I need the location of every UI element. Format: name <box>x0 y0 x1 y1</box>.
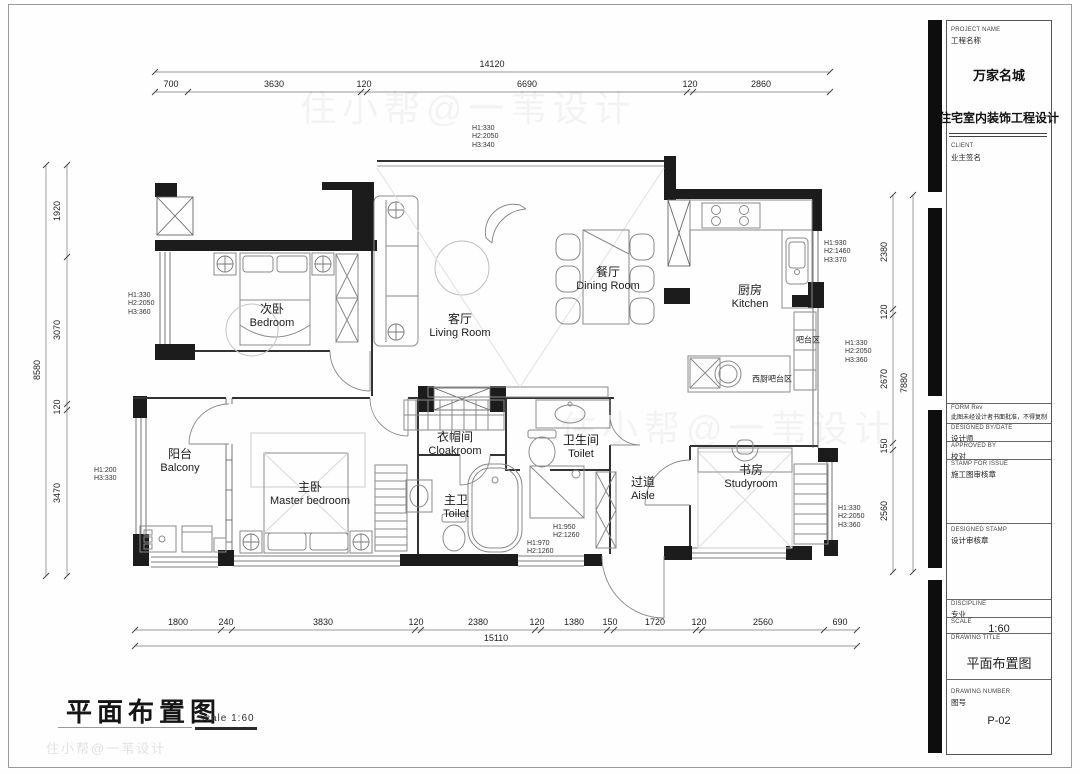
walls <box>133 156 838 566</box>
title-block: PROJECT NAME 工程名称 万家名城 住宅室内装饰工程设计 CLIENT… <box>946 20 1052 755</box>
room-label-living: 客厅 Living Room <box>429 313 490 339</box>
dim-bottom-seg: 150 <box>602 617 617 627</box>
room-label-west-bar: 西厨吧台区 <box>752 374 792 385</box>
dim-left-seg: 3470 <box>52 483 62 503</box>
divider <box>947 459 1051 460</box>
furniture <box>140 168 828 553</box>
tv-bench <box>428 387 608 397</box>
kitchen-sink <box>786 238 808 284</box>
note-kitchen-right: H1:930H2:1460H3:370 <box>824 240 850 265</box>
sofa <box>374 196 418 346</box>
dim-right-total: 7880 <box>899 373 909 393</box>
toilet-fixture <box>528 430 556 467</box>
dim-right-seg: 2560 <box>879 501 889 521</box>
dim-left-total: 8580 <box>32 360 42 380</box>
divider <box>947 423 1051 424</box>
title-underline <box>58 727 192 728</box>
project-name-label: PROJECT NAME <box>951 27 1000 33</box>
dim-bottom-seg: 240 <box>218 617 233 627</box>
dim-right-seg: 2380 <box>879 242 889 262</box>
dim-left-seg: 1920 <box>52 201 62 221</box>
note-balcony-left: H1:200H3:330 <box>94 467 117 484</box>
dim-bottom-seg: 1720 <box>645 617 665 627</box>
divider <box>947 599 1051 600</box>
room-label-kitchen: 厨房 Kitchen <box>732 284 769 310</box>
project-name: 万家名城 <box>947 65 1051 84</box>
dim-bottom-seg: 2380 <box>468 617 488 627</box>
divider <box>947 633 1051 634</box>
title-block-bar <box>928 410 942 568</box>
dim-top-total: 14120 <box>479 59 504 69</box>
dim-bottom-seg: 120 <box>529 617 544 627</box>
dim-top-seg: 120 <box>682 79 697 89</box>
sheet-scale-note: scale 1:60 <box>199 713 255 724</box>
dim-top-seg: 2860 <box>751 79 771 89</box>
designed-by-label: DESIGNED BY/DATE <box>951 425 1012 431</box>
divider <box>947 441 1051 442</box>
divider <box>947 523 1051 524</box>
drawing-number-value: P-02 <box>947 715 1051 727</box>
dim-bottom-seg: 3830 <box>313 617 333 627</box>
dim-bottom-seg: 690 <box>832 617 847 627</box>
room-label-master-toilet: 主卫 Toilet <box>443 494 469 520</box>
dim-left-seg: 3070 <box>52 320 62 340</box>
shafts <box>157 197 690 410</box>
stamp-value: 施工图审核章 <box>951 469 996 480</box>
dim-right-seg: 2670 <box>879 369 889 389</box>
watermark: 住小帮@一苇设计 <box>46 738 166 757</box>
note-bar-right: H1:330H2:2050H3:360 <box>845 340 871 365</box>
divider <box>947 679 1051 680</box>
shower <box>530 466 584 518</box>
divider <box>947 403 1051 404</box>
room-label-dining: 餐厅 Dining Room <box>576 266 640 292</box>
stamp-label: STAMP FOR ISSUE <box>951 461 1008 467</box>
title-block-bar <box>928 20 942 192</box>
room-label-bar: 吧台区 <box>796 335 820 346</box>
lounge-chair <box>485 204 526 243</box>
divider <box>949 133 1047 137</box>
room-label-cloakroom: 衣帽间 Cloakroom <box>428 431 481 457</box>
dim-bottom-seg: 120 <box>691 617 706 627</box>
dim-bottom-seg: 1380 <box>564 617 584 627</box>
stove <box>702 203 760 228</box>
watermark-ghost: 住小帮@一苇设计 <box>300 80 637 132</box>
drawing-title-value: 平面布置图 <box>947 653 1051 672</box>
room-label-master-bedroom: 主卧 Master bedroom <box>270 481 350 507</box>
dim-right-seg: 120 <box>879 304 889 319</box>
note-bath-1: H1:950H2:1260 <box>553 524 579 541</box>
shoe-cabinet <box>596 472 616 548</box>
room-label-study: 书房 Studyroom <box>724 464 777 490</box>
approved-by-label: APPROVED BY <box>951 443 996 449</box>
drawing-sheet: 次卧 Bedroom 客厅 Living Room 餐厅 Dining Room… <box>0 0 1080 774</box>
balcony-cabinet <box>182 526 226 552</box>
note-bath-2: H1:970H2:1260 <box>527 540 553 557</box>
drawing-number-label: DRAWING NUMBER <box>951 689 1010 695</box>
dim-bottom-seg: 2560 <box>753 617 773 627</box>
form-note: 此图未经设计者书面批准，不得复制 <box>951 412 1047 421</box>
drawing-number-zh: 图号 <box>951 697 966 708</box>
client-label: CLIENT <box>951 143 974 149</box>
sheet-main-title: 平面布置图 <box>66 692 221 729</box>
note-study-right: H1:330H2:2050H3:360 <box>838 505 864 530</box>
form-label: FORM Rev <box>951 405 983 411</box>
discipline-label: DISCIPLINE <box>951 601 986 607</box>
dim-top-seg: 3630 <box>264 79 284 89</box>
designed-stamp-label: DESIGNED STAMP <box>951 527 1007 533</box>
bookshelf <box>794 464 828 544</box>
scale-underline <box>195 727 257 730</box>
client-value: 业主签名 <box>951 152 981 163</box>
divider <box>947 617 1051 618</box>
wardrobe-secondary <box>336 254 358 342</box>
dim-left-seg: 120 <box>52 399 62 414</box>
room-label-bedroom2: 次卧 Bedroom <box>250 303 295 329</box>
watermark-ghost: 住小帮@一苇设计 <box>560 400 897 452</box>
dim-bottom-seg: 120 <box>408 617 423 627</box>
note-bedroom2-left: H1:330H2:2050H3:360 <box>128 292 154 317</box>
drawing-title-label: DRAWING TITLE <box>951 635 1000 641</box>
kitchen-counter <box>690 200 812 230</box>
dim-top-seg: 700 <box>163 79 178 89</box>
wardrobe-master <box>375 465 407 551</box>
project-type: 住宅室内装饰工程设计 <box>939 109 1059 126</box>
title-block-bar <box>928 580 942 753</box>
room-label-aisle: 过道 Aisle <box>631 476 655 502</box>
rug-round <box>435 241 489 295</box>
bed-secondary <box>240 253 310 345</box>
bathtub <box>468 464 522 552</box>
project-name-label-zh: 工程名称 <box>951 35 981 46</box>
dim-bottom-total: 15110 <box>484 633 508 643</box>
title-block-bar <box>928 208 942 396</box>
dim-bottom-seg: 1800 <box>168 617 188 627</box>
designed-stamp-value: 设计审核章 <box>951 535 989 546</box>
room-label-balcony: 阳台 Balcony <box>160 448 199 474</box>
